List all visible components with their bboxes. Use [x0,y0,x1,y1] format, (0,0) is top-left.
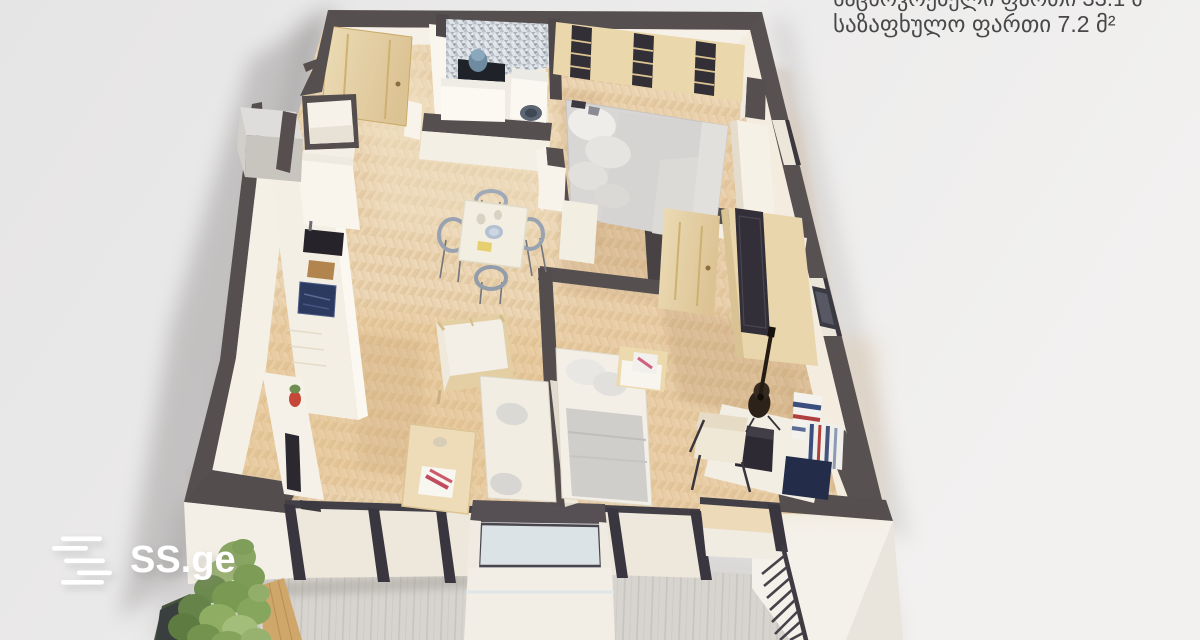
svg-text:საზაფხულო ფართი 7.2 მ²: საზაფხულო ფართი 7.2 მ² [833,11,1116,38]
svg-text:SS.ge: SS.ge [130,539,236,581]
